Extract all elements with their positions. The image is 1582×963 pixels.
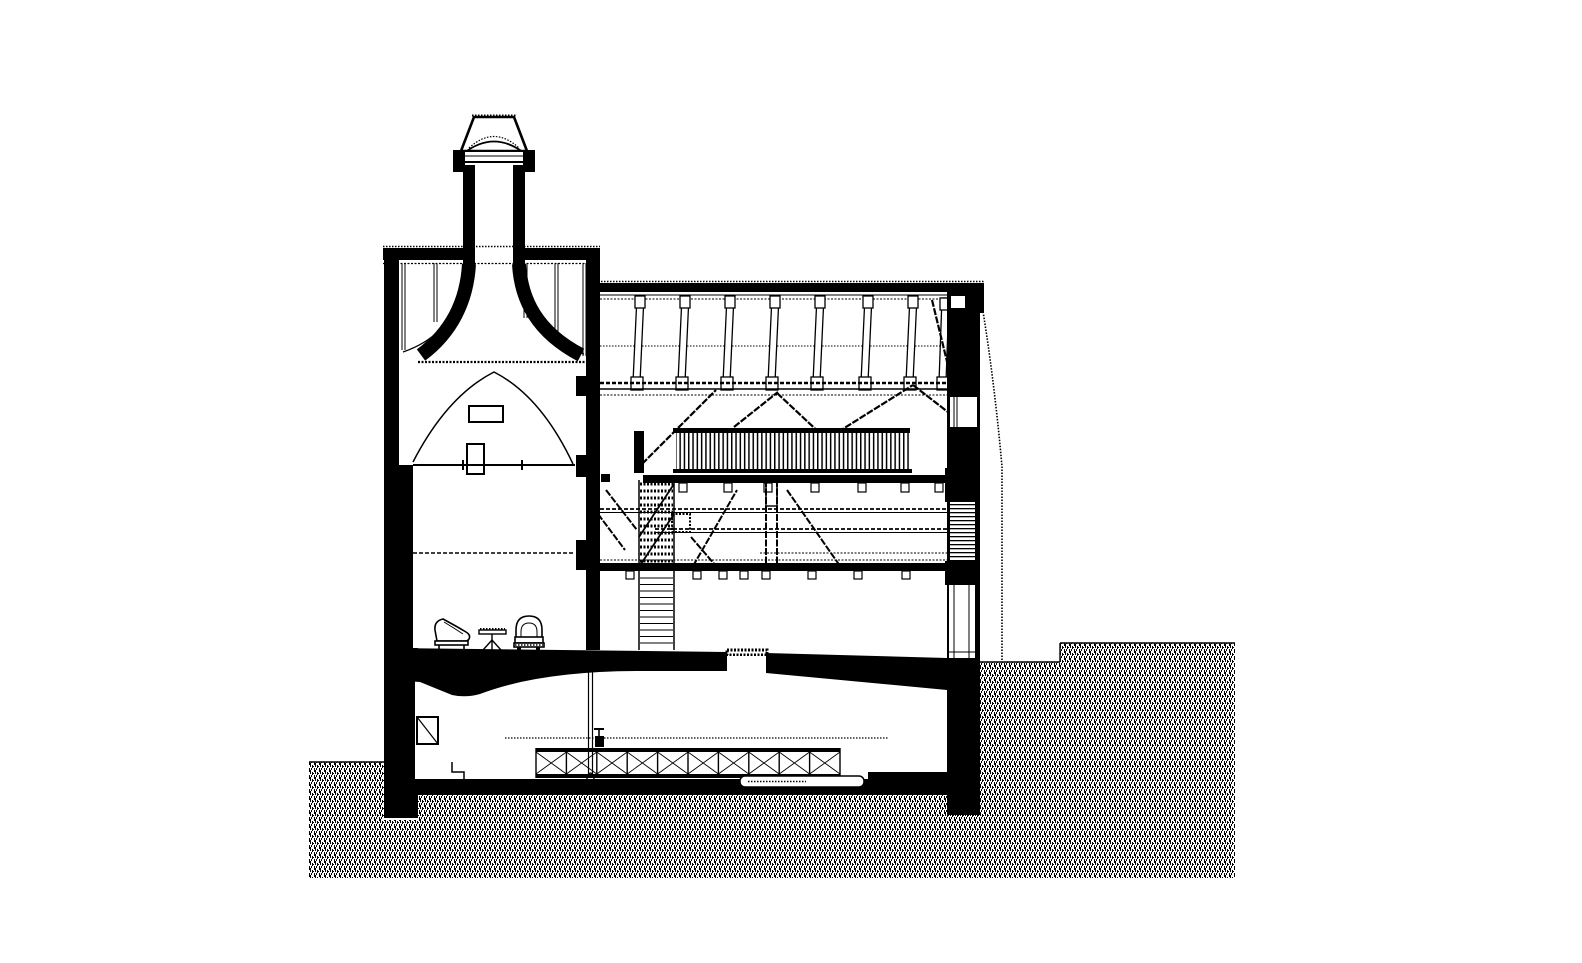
basement-slab — [415, 779, 948, 795]
right-wall-lower-window — [949, 583, 975, 658]
floor-opening — [727, 656, 766, 684]
gallery-bearing-block — [945, 468, 980, 502]
right-wall — [945, 291, 980, 815]
kiln-left-wall-lower — [384, 465, 413, 650]
stair-newel — [634, 431, 644, 473]
section-drawing-svg: Black-ink sectional drawing of a kiln (o… — [0, 0, 1582, 963]
armchair-right — [514, 616, 544, 650]
kiln-interior — [399, 262, 587, 650]
middle-bearing-block — [945, 561, 980, 585]
architectural-section-drawing: Black-ink sectional drawing of a kiln (o… — [0, 0, 1582, 963]
right-wall-upper-window — [950, 397, 977, 427]
right-wall-louver — [950, 498, 975, 565]
kiln-left-wall-upper — [384, 248, 399, 465]
kiln-right-wall — [586, 248, 600, 650]
main-building — [598, 282, 984, 651]
wall-plate-pocket — [951, 296, 965, 308]
low-platform — [740, 776, 864, 787]
